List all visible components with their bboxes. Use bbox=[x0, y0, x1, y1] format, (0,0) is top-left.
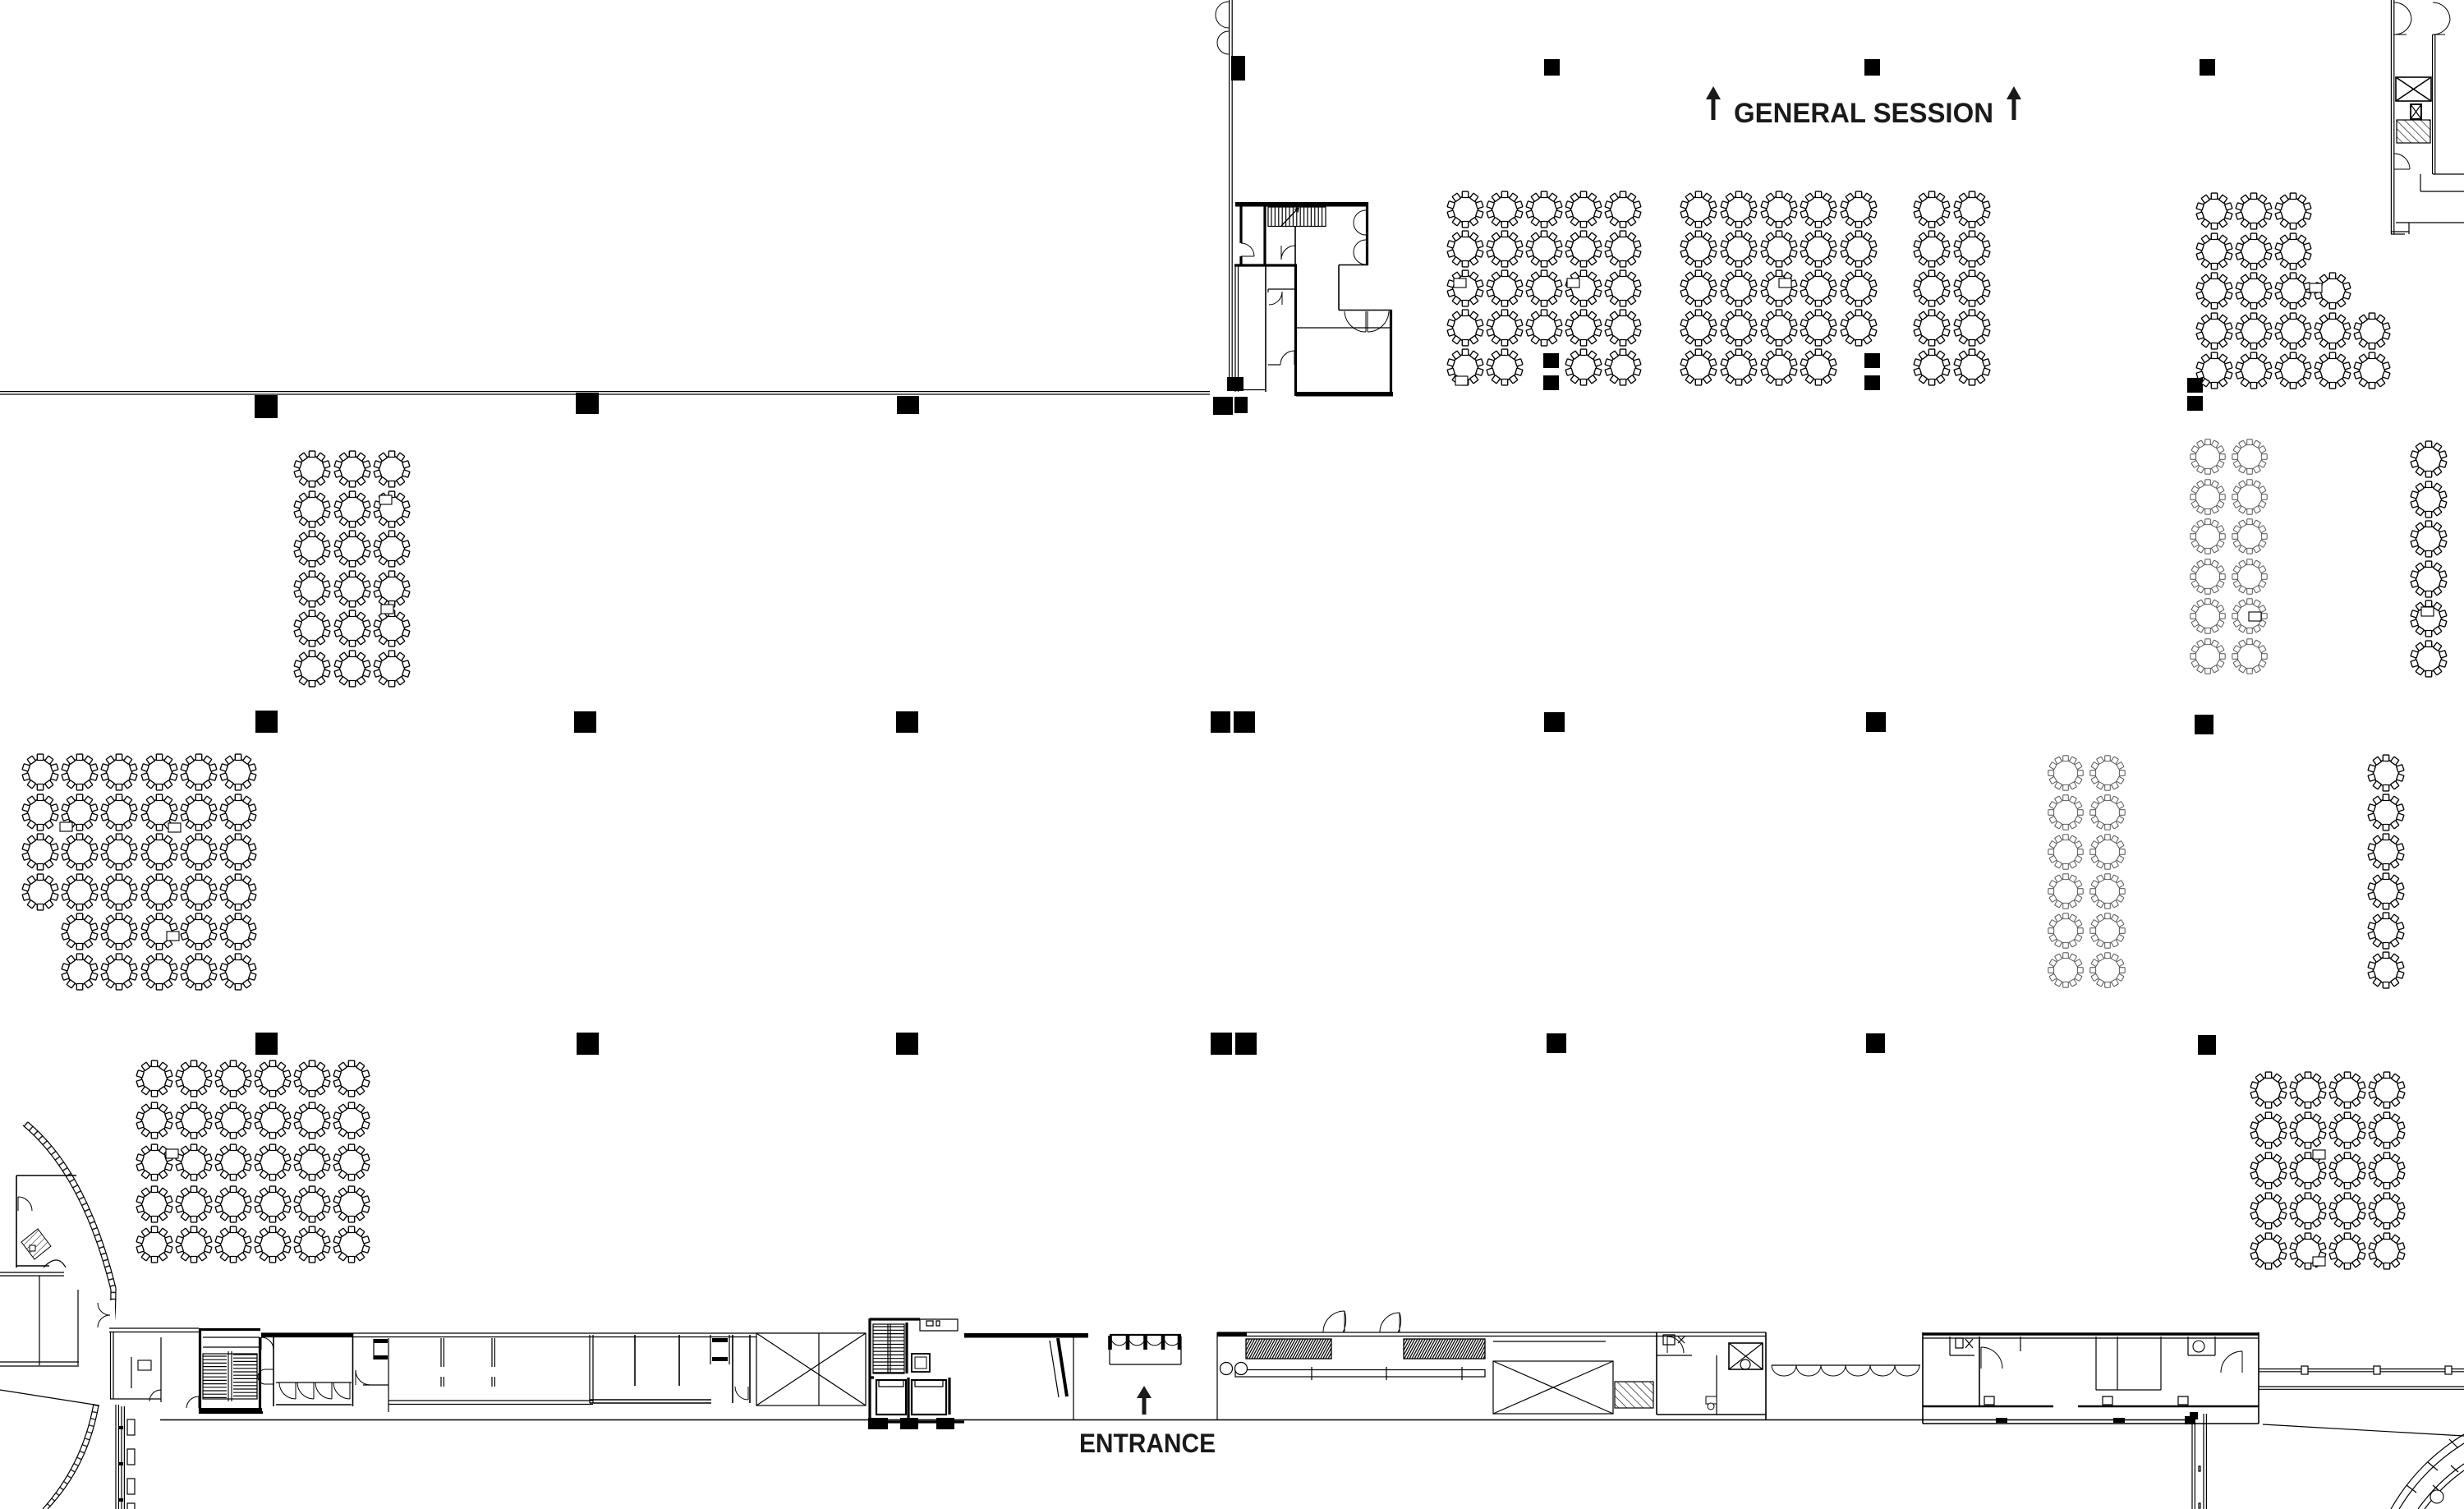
svg-text:ENTRANCE: ENTRANCE bbox=[1079, 1428, 1216, 1458]
svg-text:GENERAL SESSION: GENERAL SESSION bbox=[1734, 98, 1993, 129]
